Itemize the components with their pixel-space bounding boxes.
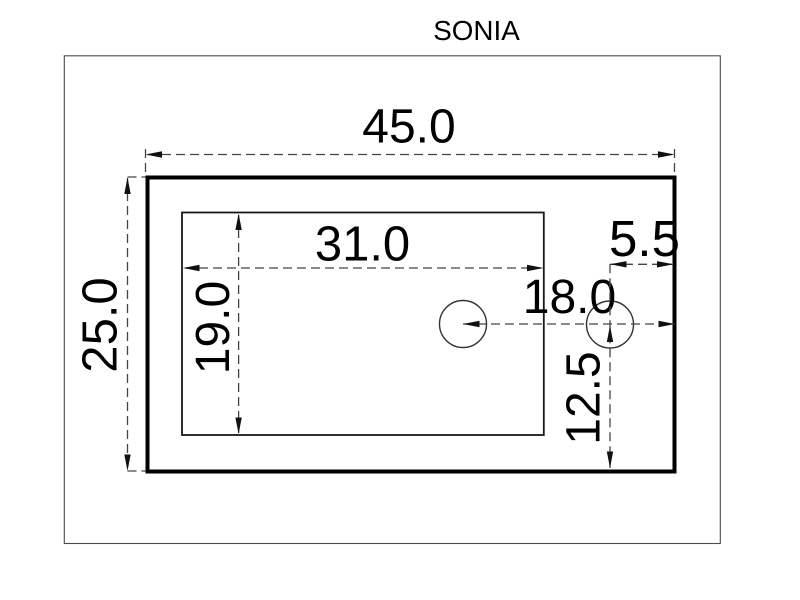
svg-text:18.0: 18.0 bbox=[523, 271, 616, 324]
svg-text:SONIA: SONIA bbox=[433, 15, 520, 46]
svg-text:45.0: 45.0 bbox=[362, 101, 455, 154]
svg-text:5.5: 5.5 bbox=[609, 210, 680, 267]
svg-text:19.0: 19.0 bbox=[187, 281, 240, 374]
svg-text:31.0: 31.0 bbox=[315, 218, 410, 272]
svg-text:12.5: 12.5 bbox=[558, 351, 611, 444]
svg-text:25.0: 25.0 bbox=[74, 277, 128, 372]
